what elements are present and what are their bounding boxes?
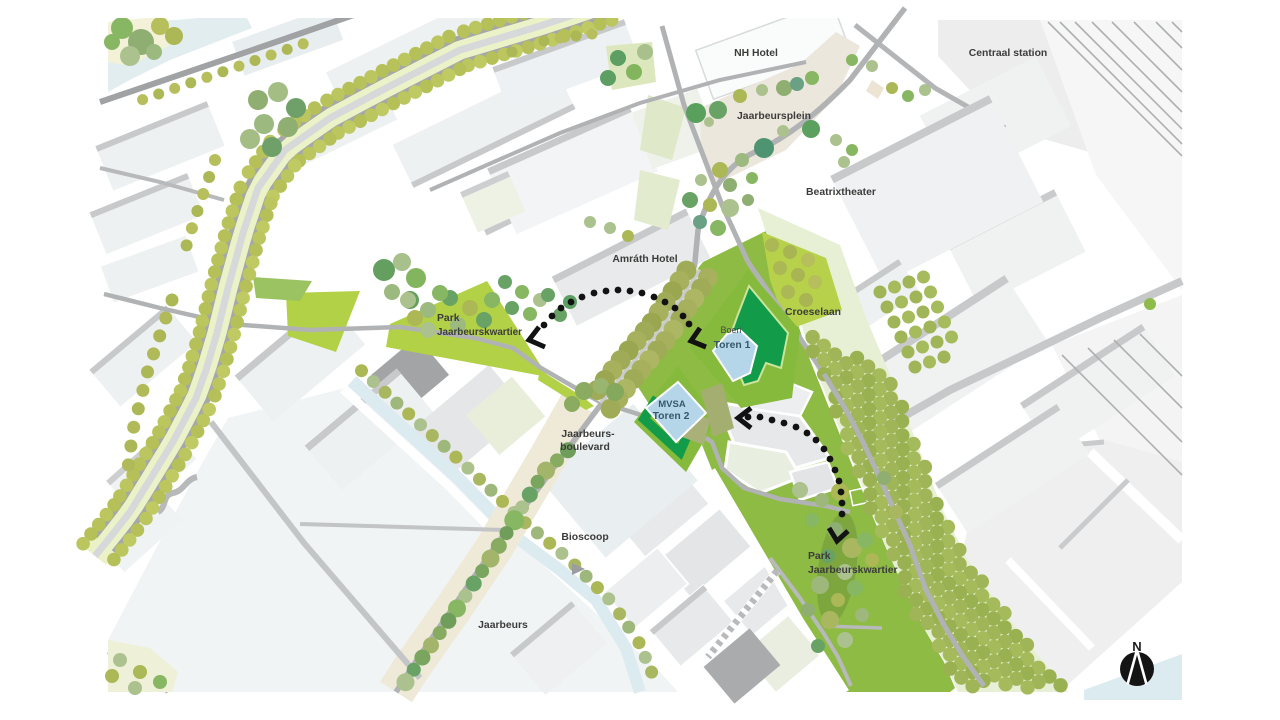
svg-text:Jaarbeurs: Jaarbeurs	[478, 620, 528, 631]
svg-text:boulevard: boulevard	[560, 442, 610, 453]
svg-text:NH Hotel: NH Hotel	[734, 48, 778, 59]
svg-text:Jaarbeurs-: Jaarbeurs-	[561, 429, 615, 440]
svg-text:Park: Park	[808, 551, 831, 562]
svg-text:Park: Park	[437, 313, 460, 324]
svg-text:Amráth Hotel: Amráth Hotel	[612, 254, 677, 265]
svg-text:MVSA: MVSA	[658, 399, 686, 410]
svg-text:Jaarbeursplein: Jaarbeursplein	[737, 111, 811, 122]
svg-text:Jaarbeurskwartier: Jaarbeurskwartier	[808, 565, 898, 576]
svg-text:Centraal station: Centraal station	[969, 48, 1048, 59]
svg-text:Toren 2: Toren 2	[653, 411, 690, 422]
svg-text:Boeri: Boeri	[720, 325, 741, 335]
svg-text:Bioscoop: Bioscoop	[561, 532, 608, 543]
svg-text:Toren 1: Toren 1	[714, 340, 751, 351]
svg-text:Beatrixtheater: Beatrixtheater	[806, 187, 876, 198]
svg-text:Croeselaan: Croeselaan	[785, 307, 841, 318]
svg-text:Jaarbeurskwartier: Jaarbeurskwartier	[437, 327, 522, 338]
